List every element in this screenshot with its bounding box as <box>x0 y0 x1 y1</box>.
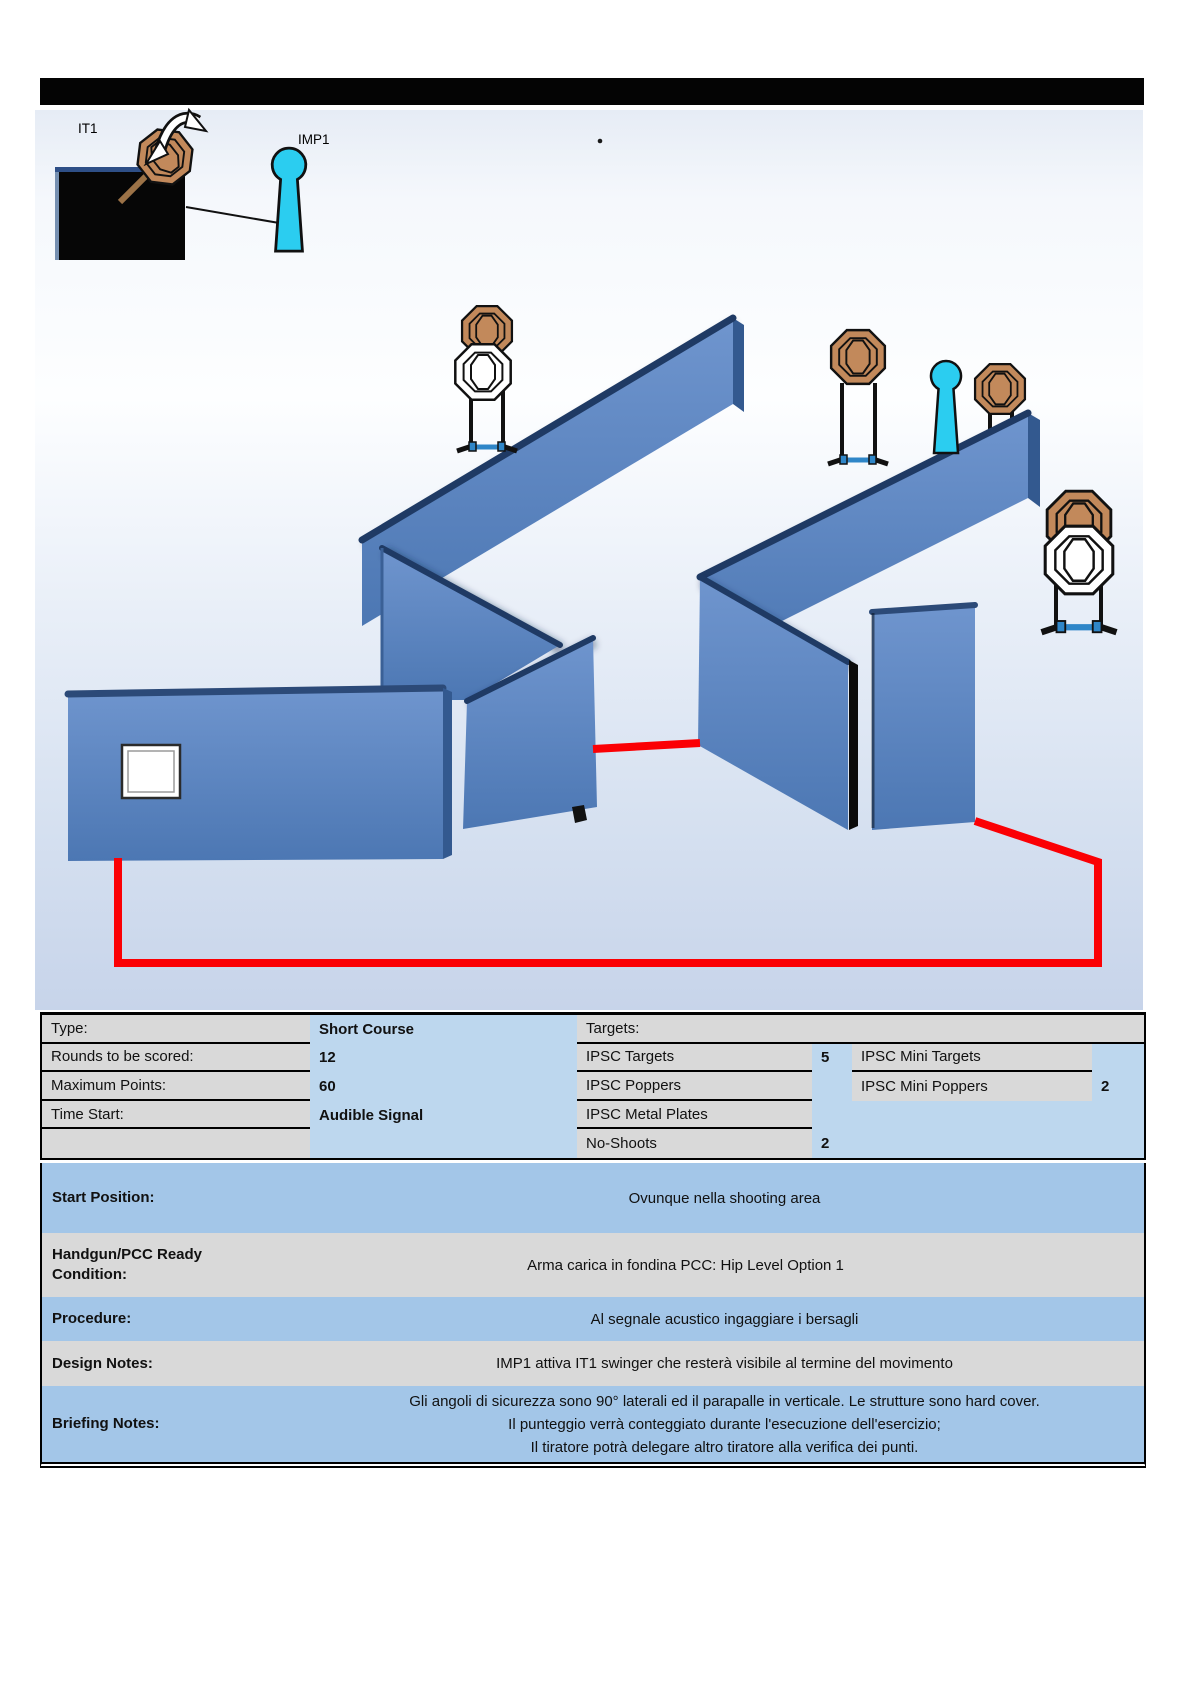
popper-label: IMP1 <box>298 132 330 147</box>
section-procedure: Procedure: Al segnale acustico ingaggiar… <box>42 1297 1144 1341</box>
no-shoots-label: No-Shoots <box>577 1129 812 1158</box>
ipsc-poppers-count <box>812 1072 852 1101</box>
section-ready-condition: Handgun/PCC Ready Condition: Arma carica… <box>42 1233 1144 1297</box>
info-table: Type: Short Course Targets: Rounds to be… <box>40 1012 1146 1160</box>
design-notes-value: IMP1 attiva IT1 swinger che resterà visi… <box>305 1352 1144 1375</box>
no-shoot-target-2 <box>1045 526 1113 594</box>
max-points-label: Maximum Points: <box>42 1072 310 1101</box>
empty-label <box>42 1129 310 1158</box>
empty-cell-2 <box>1092 1101 1144 1130</box>
diagram-background <box>35 110 1143 1010</box>
ready-condition-label: Handgun/PCC Ready Condition: <box>42 1245 227 1285</box>
wall-gap-strip <box>849 660 858 830</box>
mini-poppers-count: 2 <box>1092 1072 1144 1101</box>
briefing-line-3: Il tiratore potrà delegare altro tirator… <box>305 1436 1144 1459</box>
section-design-notes: Design Notes: IMP1 attiva IT1 swinger ch… <box>42 1341 1144 1386</box>
briefing-line-2: Il punteggio verrà conteggiato durante l… <box>305 1413 1144 1436</box>
marker-dot <box>598 139 603 144</box>
empty-cell-3 <box>852 1129 1092 1158</box>
empty-cell-1 <box>852 1101 1092 1130</box>
metal-plates-label: IPSC Metal Plates <box>577 1101 812 1130</box>
ipsc-targets-count: 5 <box>812 1044 852 1073</box>
time-start-label: Time Start: <box>42 1101 310 1130</box>
ipsc-target-3-paper <box>975 364 1025 414</box>
briefing-line-1: Gli angoli di sicurezza sono 90° lateral… <box>305 1390 1144 1413</box>
rounds-label: Rounds to be scored: <box>42 1044 310 1073</box>
metal-plates-count <box>812 1101 852 1130</box>
no-shoot-target-1 <box>455 344 510 399</box>
mini-targets-label: IPSC Mini Targets <box>852 1044 1092 1073</box>
no-shoots-count: 2 <box>812 1129 852 1158</box>
stage-diagram: IT1 IMP1 <box>0 0 1190 1010</box>
section-briefing-notes: Briefing Notes: Gli angoli di sicurezza … <box>42 1386 1144 1462</box>
targets-header: Targets: <box>577 1015 1144 1044</box>
wall-low-left <box>68 688 452 861</box>
procedure-value: Al segnale acustico ingaggiare i bersagl… <box>305 1308 1144 1331</box>
ipsc-targets-label: IPSC Targets <box>577 1044 812 1073</box>
rounds-value: 12 <box>310 1044 577 1073</box>
start-position-label: Start Position: <box>42 1188 305 1208</box>
briefing-notes-label: Briefing Notes: <box>42 1414 305 1434</box>
port-window <box>122 745 180 798</box>
start-position-value: Ovunque nella shooting area <box>305 1187 1144 1210</box>
type-label: Type: <box>42 1015 310 1044</box>
empty-value <box>310 1129 577 1158</box>
swinger-wall-left-edge <box>55 172 59 260</box>
stage-briefing-page: IT1 IMP1 <box>0 0 1190 1684</box>
ipsc-poppers-label: IPSC Poppers <box>577 1072 812 1101</box>
max-points-value: 60 <box>310 1072 577 1101</box>
time-start-value: Audible Signal <box>310 1101 577 1130</box>
swinger-label: IT1 <box>78 121 98 136</box>
briefing-notes-value: Gli angoli di sicurezza sono 90° lateral… <box>305 1390 1144 1459</box>
design-notes-label: Design Notes: <box>42 1354 305 1374</box>
briefing-sections: Start Position: Ovunque nella shooting a… <box>40 1163 1146 1468</box>
type-value: Short Course <box>310 1015 577 1044</box>
mini-poppers-label: IPSC Mini Poppers <box>852 1072 1092 1101</box>
ipsc-target-2 <box>831 330 885 384</box>
section-start-position: Start Position: Ovunque nella shooting a… <box>42 1163 1144 1233</box>
swinger-hardcover-wall <box>55 172 185 260</box>
ready-condition-value: Arma carica in fondina PCC: Hip Level Op… <box>227 1254 1144 1277</box>
empty-cell-4 <box>1092 1129 1144 1158</box>
procedure-label: Procedure: <box>42 1309 305 1329</box>
mini-targets-count <box>1092 1044 1144 1073</box>
wall-right-front <box>872 605 975 830</box>
